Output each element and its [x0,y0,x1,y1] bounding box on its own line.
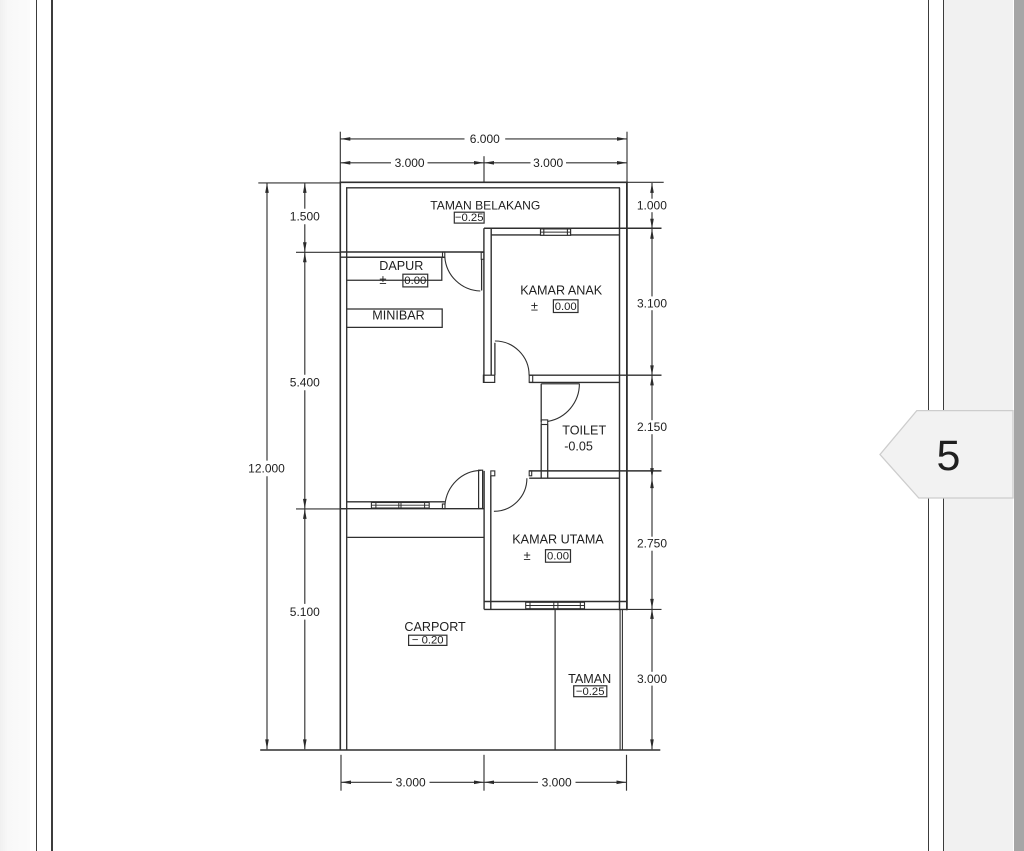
svg-text:0.00: 0.00 [547,551,569,563]
svg-text:2.750: 2.750 [637,537,667,551]
svg-text:1.500: 1.500 [290,209,320,223]
svg-text:5: 5 [937,432,961,480]
svg-text:0.00: 0.00 [555,301,577,313]
svg-text:12.000: 12.000 [248,461,285,475]
svg-text:KAMAR UTAMA: KAMAR UTAMA [512,533,604,547]
svg-text:3.000: 3.000 [396,776,426,790]
svg-text:TOILET: TOILET [562,423,606,437]
svg-text:− 0.20: − 0.20 [412,635,444,647]
svg-text:MINIBAR: MINIBAR [372,308,424,322]
svg-text:3.000: 3.000 [395,156,425,170]
svg-text:KAMAR ANAK: KAMAR ANAK [520,284,602,298]
svg-text:0.00: 0.00 [404,275,426,287]
svg-text:±: ± [524,548,531,563]
svg-text:TAMAN: TAMAN [568,672,611,686]
svg-text:1.000: 1.000 [637,199,667,213]
svg-text:3.000: 3.000 [542,776,572,790]
svg-text:−0.25: −0.25 [576,686,605,698]
svg-text:3.000: 3.000 [533,156,563,170]
svg-text:-0.05: -0.05 [564,440,593,454]
svg-text:TAMAN BELAKANG: TAMAN BELAKANG [430,199,540,213]
svg-text:2.150: 2.150 [637,420,667,434]
svg-text:DAPUR: DAPUR [379,259,423,273]
svg-text:3.000: 3.000 [637,672,667,686]
svg-text:±: ± [531,298,538,313]
svg-text:CARPORT: CARPORT [404,620,466,634]
svg-text:6.000: 6.000 [470,132,500,146]
svg-text:3.100: 3.100 [637,296,667,310]
svg-text:5.400: 5.400 [290,375,320,389]
svg-text:±: ± [379,272,386,287]
svg-text:5.100: 5.100 [290,605,320,619]
svg-text:−0.25: −0.25 [455,212,484,224]
